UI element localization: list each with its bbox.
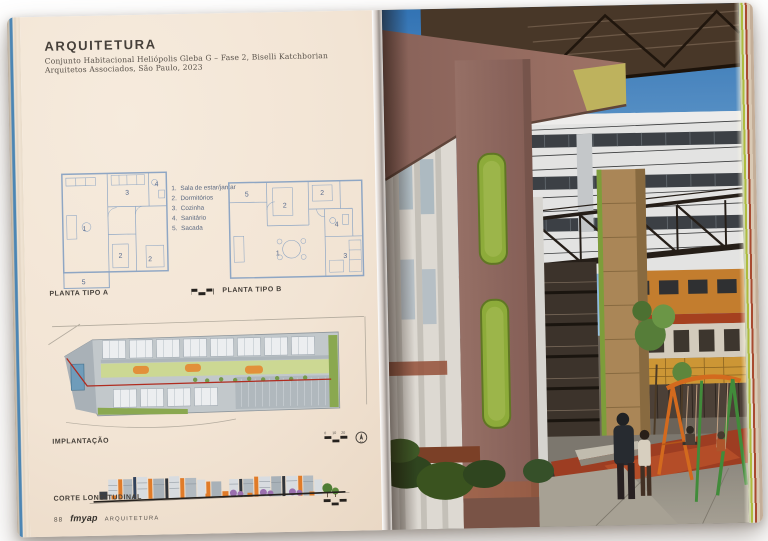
left-page: ARQUITETURA Conjunto Habitacional Helióp… bbox=[20, 10, 382, 537]
plan-room-number: 2 bbox=[119, 253, 123, 260]
plan-room-number: 2 bbox=[283, 203, 287, 210]
plan-b-scalebar-icon bbox=[191, 287, 215, 296]
photo-warm-cast bbox=[382, 3, 749, 530]
svg-text:20: 20 bbox=[341, 431, 345, 435]
imprint-label: ARQUITETURA bbox=[105, 516, 160, 523]
site-plan-label: IMPLANTAÇÃO bbox=[52, 438, 109, 446]
floor-plan-a: 1 3 4 2 2 5 bbox=[49, 164, 180, 295]
plan-room-number: 2 bbox=[148, 256, 152, 263]
publisher-logo: fmyap bbox=[70, 513, 98, 524]
plan-a-label: PLANTA TIPO A bbox=[49, 290, 108, 298]
plan-room-number: 5 bbox=[245, 191, 249, 198]
svg-text:10: 10 bbox=[332, 431, 336, 435]
scale-bar-icon: 0 10 20 bbox=[324, 431, 347, 443]
site-green-east bbox=[328, 335, 338, 407]
page-number: 88 bbox=[54, 517, 63, 524]
plan-room-number: 3 bbox=[125, 190, 129, 197]
page-subtitle: Conjunto Habitacional Heliópolis Gleba G… bbox=[45, 51, 355, 75]
site-plan-scale-north: 0 10 20 N bbox=[324, 429, 370, 445]
plan-room-number: 2 bbox=[320, 190, 324, 197]
plan-room-number: 3 bbox=[343, 253, 347, 260]
book-spread: ARQUITETURA Conjunto Habitacional Helióp… bbox=[7, 3, 763, 538]
page-footer: 88 fmyap ARQUITETURA bbox=[54, 512, 160, 524]
floor-plan-b: 5 2 2 4 1 3 bbox=[219, 160, 373, 287]
plan-room-number: 5 bbox=[82, 279, 86, 286]
photo-background: ARQUITETURA Conjunto Habitacional Helióp… bbox=[0, 0, 768, 541]
plan-room-number: 1 bbox=[276, 250, 280, 257]
plan-room-number: 4 bbox=[335, 221, 339, 228]
site-plan-drawing bbox=[34, 304, 376, 433]
section-scalebar-icon bbox=[324, 497, 354, 508]
right-page-photo bbox=[382, 3, 749, 530]
plan-b-label: PLANTA TIPO B bbox=[222, 286, 282, 294]
svg-text:0: 0 bbox=[324, 431, 326, 435]
plan-room-number: 4 bbox=[155, 181, 159, 188]
site-pool bbox=[71, 364, 85, 390]
courtyard-photo bbox=[382, 3, 749, 530]
north-arrow-icon: N bbox=[356, 432, 367, 444]
plan-room-number: 1 bbox=[83, 226, 87, 233]
page-header: ARQUITETURA Conjunto Habitacional Helióp… bbox=[44, 33, 355, 75]
